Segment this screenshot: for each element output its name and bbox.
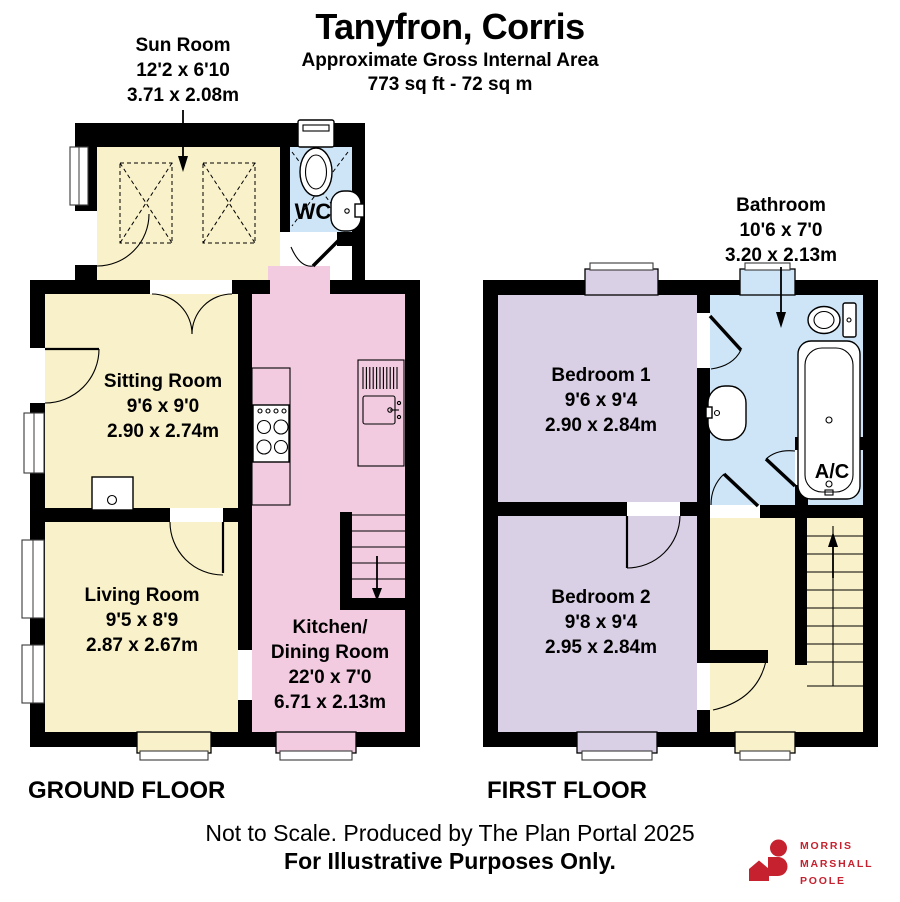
sunroom-door-opening [75,211,97,265]
first-floor-plan [483,263,878,760]
page-subtitle: Approximate Gross Internal Area [301,50,598,72]
room-label-airing-cupboard: A/C [815,461,849,483]
room-size-metric: 6.71 x 2.13m [271,690,389,715]
logo-line1: MORRIS [800,838,873,856]
room-name-line1: Kitchen/ [271,615,389,640]
hearth-icon [92,477,133,510]
room-size-metric: 2.95 x 2.84m [545,635,657,660]
room-label-sitting-room: Sitting Room 9'6 x 9'0 2.90 x 2.74m [104,369,222,444]
room-name: Sitting Room [104,369,222,394]
front-door-opening [30,348,45,403]
room-size-imperial: 9'6 x 9'4 [545,388,657,413]
sink-icon-bathroom [706,386,746,440]
disclaimer-line1: Not to Scale. Produced by The Plan Porta… [205,820,694,847]
room-label-sun-room: Sun Room 12'2 x 6'10 3.71 x 2.08m [127,33,239,108]
room-size-metric: 2.90 x 2.74m [104,419,222,444]
room-size-imperial: 22'0 x 7'0 [271,665,389,690]
room-size-metric: 2.90 x 2.84m [545,413,657,438]
logo-text: MORRIS MARSHALL POOLE [800,838,873,891]
room-label-wc: WC [295,200,332,224]
room-size-imperial: 9'6 x 9'0 [104,394,222,419]
room-name: Bathroom [725,193,837,218]
room-name: Living Room [84,583,199,608]
logo-line3: POOLE [800,873,873,891]
room-label-kitchen-dining: Kitchen/ Dining Room 22'0 x 7'0 6.71 x 2… [271,615,389,715]
room-label-living-room: Living Room 9'5 x 8'9 2.87 x 2.67m [84,583,199,658]
room-name-line2: Dining Room [271,640,389,665]
sink-icon-wc [331,191,364,231]
room-size-metric: 2.87 x 2.67m [84,633,199,658]
room-size-metric: 3.20 x 2.13m [725,243,837,268]
room-size-imperial: 9'8 x 9'4 [545,610,657,635]
gross-internal-area: 773 sq ft - 72 sq m [368,74,533,96]
room-size-imperial: 12'2 x 6'10 [127,58,239,83]
room-size-imperial: 9'5 x 8'9 [84,608,199,633]
first-floor-label: FIRST FLOOR [487,777,647,805]
room-label-bedroom-1: Bedroom 1 9'6 x 9'4 2.90 x 2.84m [545,363,657,438]
toilet-icon-bathroom [808,303,856,337]
room-size-imperial: 10'6 x 7'0 [725,218,837,243]
room-size-metric: 3.71 x 2.08m [127,83,239,108]
logo-mark-icon [748,833,796,885]
disclaimer-line2: For Illustrative Purposes Only. [284,848,616,875]
room-name: Bedroom 2 [545,585,657,610]
ground-floor-label: GROUND FLOOR [28,777,225,805]
morris-marshall-poole-logo: MORRIS MARSHALL POOLE [748,833,898,893]
toilet-icon-wc [298,120,334,196]
logo-line2: MARSHALL [800,856,873,874]
cooker-icon [253,405,289,462]
room-name: Bedroom 1 [545,363,657,388]
room-label-bedroom-2: Bedroom 2 9'8 x 9'4 2.95 x 2.84m [545,585,657,660]
room-label-bathroom: Bathroom 10'6 x 7'0 3.20 x 2.13m [725,193,837,268]
room-name: Sun Room [127,33,239,58]
page-title: Tanyfron, Corris [315,6,584,48]
floor-plan-graphics [0,0,900,902]
